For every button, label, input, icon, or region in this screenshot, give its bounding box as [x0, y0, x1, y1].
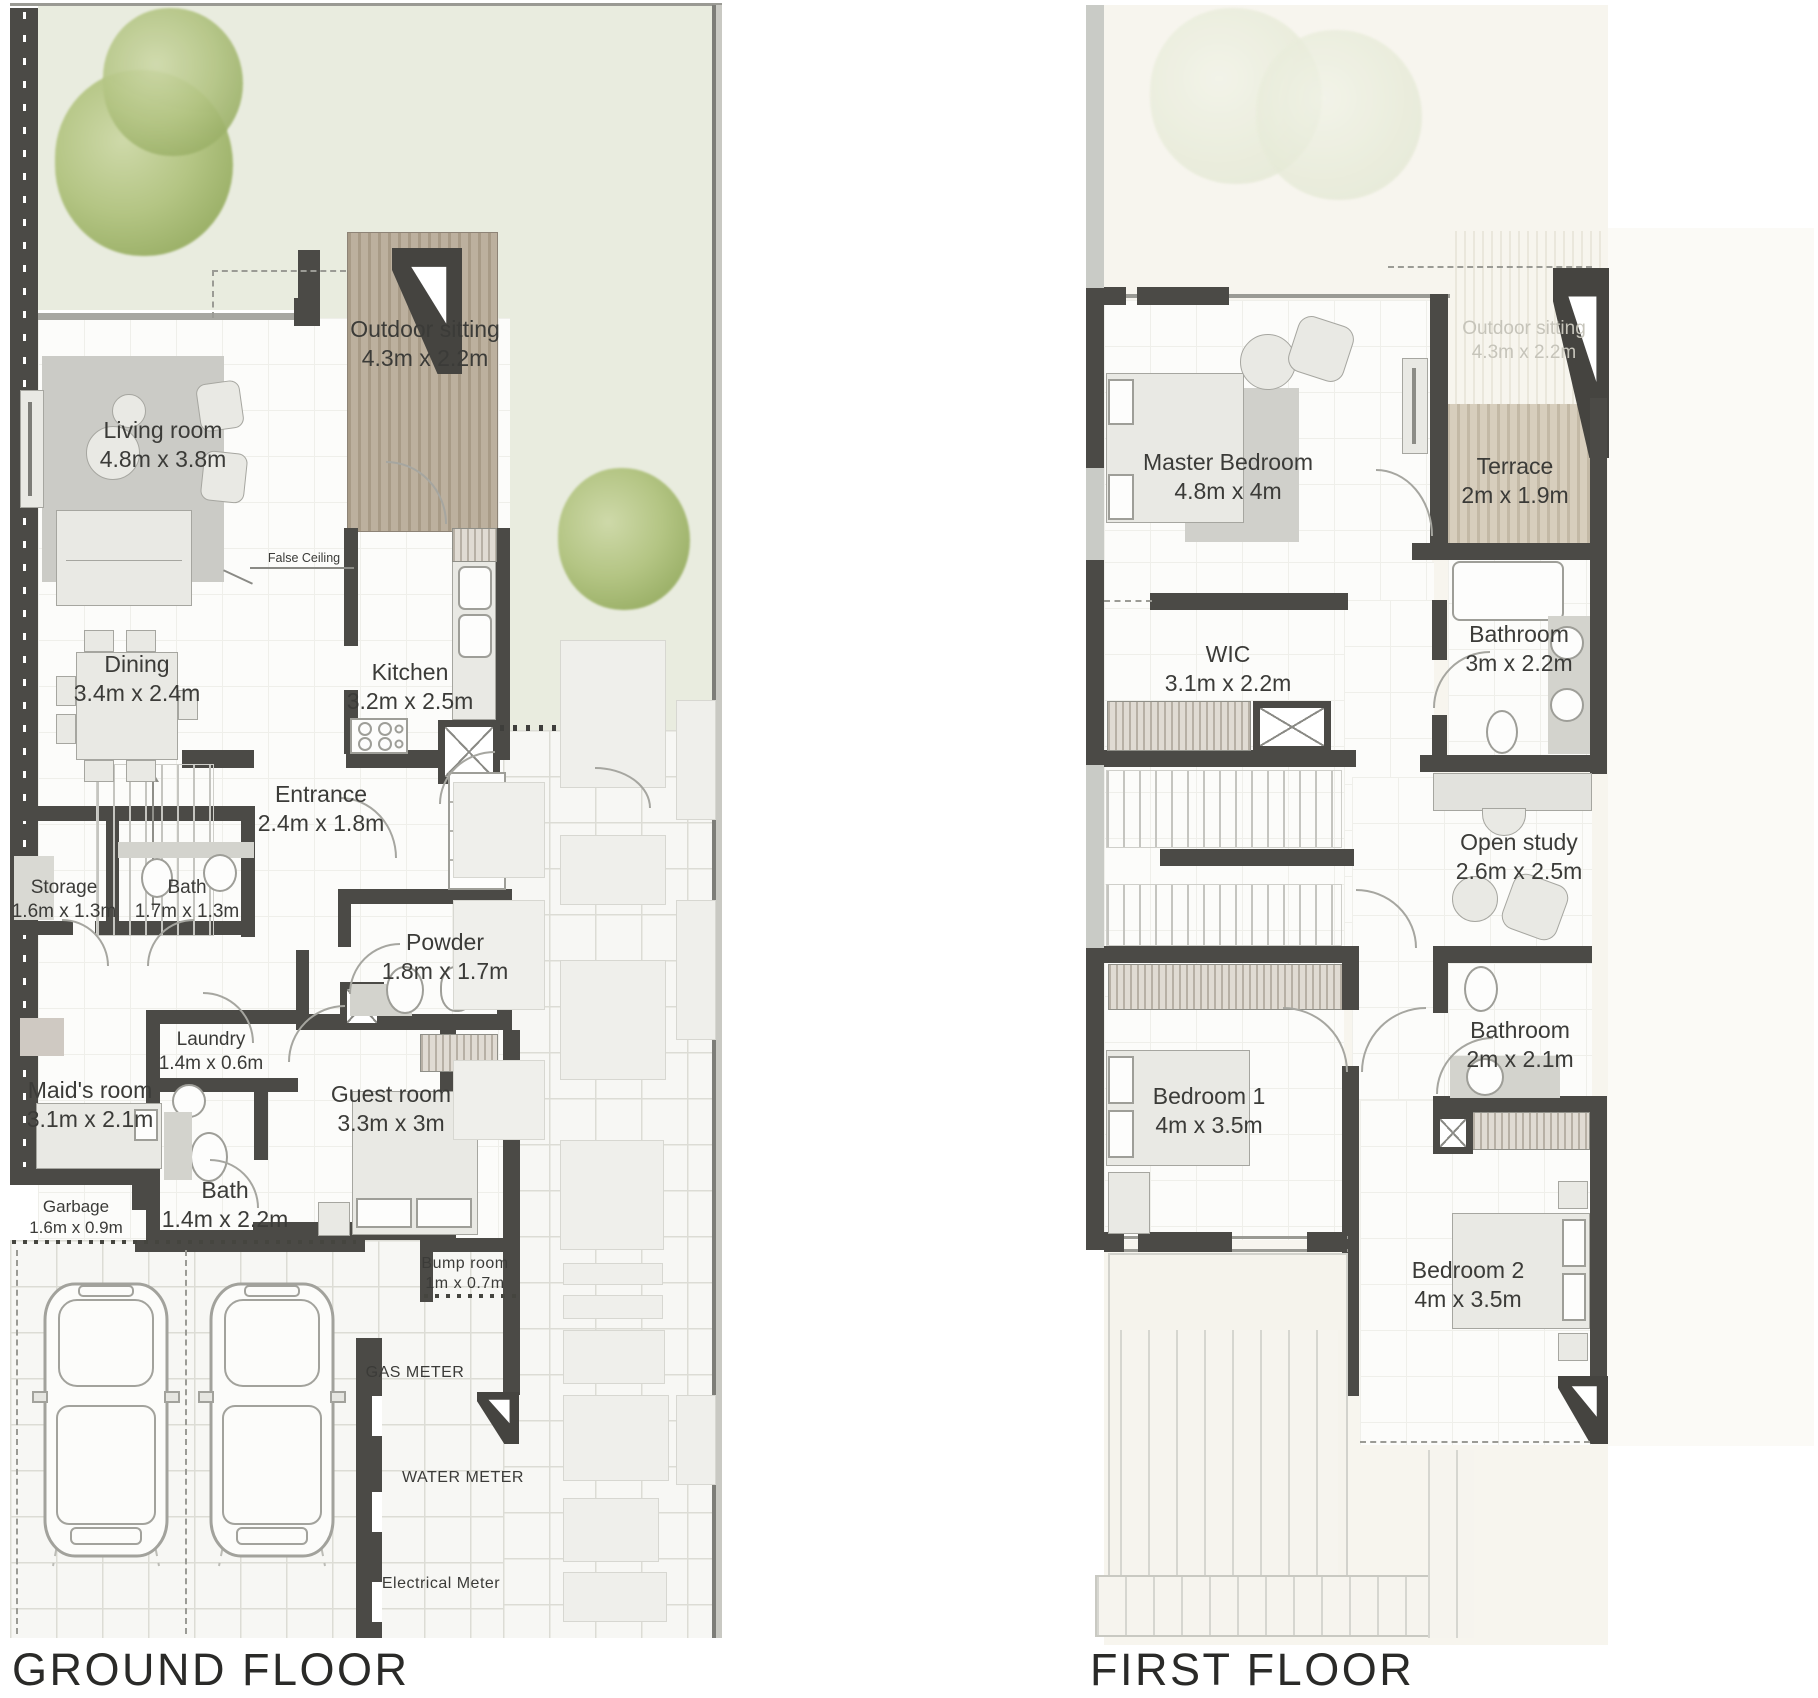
wardrobe	[1472, 1112, 1590, 1150]
pillow	[1562, 1273, 1586, 1321]
staircase-upper-flight	[1106, 770, 1342, 848]
service-shaft	[1433, 1112, 1473, 1154]
room-label-bathroom2: Bathroom2m x 2.1m	[1430, 1016, 1610, 1074]
wall	[1137, 287, 1229, 305]
balcony-slats-bottom	[1095, 1575, 1473, 1637]
setback-line	[1360, 1441, 1590, 1443]
ground-floor-title: GROUND FLOOR	[12, 1644, 410, 1696]
wall	[1433, 963, 1448, 1013]
nightstand	[1558, 1333, 1588, 1361]
opening-line	[1104, 600, 1152, 602]
study-desk	[1433, 773, 1592, 811]
room-label-bed1: Bedroom 14m x 3.5m	[1119, 1082, 1299, 1140]
wall	[1433, 946, 1592, 963]
roof-slats	[1428, 1450, 1474, 1638]
room-label-ghost-outdoor: Outdoor sitting4.3m x 2.2m	[1429, 317, 1619, 365]
wall	[1086, 948, 1104, 1250]
first-floor-title: FIRST FLOOR	[1090, 1644, 1414, 1696]
pillow	[1562, 1219, 1586, 1267]
floor-plan-sheet: { "document": {"type": "residential town…	[0, 0, 1818, 1698]
room-label-master: Master Bedroom4.8m x 4m	[1108, 448, 1348, 506]
corner-marker-icon	[1558, 1376, 1608, 1444]
room-label-study: Open study2.6m x 2.5m	[1424, 828, 1614, 886]
staircase-lower-flight	[1106, 884, 1342, 946]
wall	[1104, 946, 1356, 963]
wall	[1420, 755, 1594, 772]
room-label-bed2: Bedroom 24m x 3.5m	[1378, 1256, 1558, 1314]
wardrobe	[1108, 964, 1346, 1010]
room-label-bathroom1: Bathroom3m x 2.2m	[1429, 620, 1609, 678]
basin-icon	[1550, 688, 1584, 722]
wall	[1104, 287, 1126, 305]
pillow	[1108, 379, 1134, 425]
wall	[1160, 849, 1354, 866]
wall	[1342, 946, 1359, 1010]
tree-icon	[1256, 30, 1422, 200]
door-arc	[1376, 470, 1432, 536]
wall	[1307, 1232, 1347, 1252]
wall	[1104, 1232, 1124, 1252]
nightstand	[1558, 1181, 1588, 1209]
neighbor-ghost-area	[1608, 228, 1814, 1446]
first-floor-plan: Master Bedroom4.8m x 4m Outdoor sitting4…	[0, 0, 1818, 1698]
wall	[1412, 543, 1592, 560]
nightstand	[1108, 1172, 1150, 1234]
wall	[1086, 288, 1104, 468]
wall	[1590, 1096, 1607, 1396]
room-label-wic: WIC3.1m x 2.2m	[1138, 640, 1318, 698]
wall	[1086, 560, 1104, 765]
room-label-terrace: Terrace2m x 1.9m	[1435, 452, 1595, 510]
toilet-icon	[1464, 966, 1498, 1012]
wall	[1433, 1096, 1592, 1112]
wall	[1150, 593, 1348, 610]
service-shaft	[1253, 701, 1331, 753]
wall	[1432, 715, 1447, 757]
door-arc	[1283, 1008, 1347, 1072]
door-arc	[1356, 890, 1416, 948]
wall	[1138, 1232, 1232, 1252]
toilet-icon	[1486, 710, 1518, 754]
door-arc	[1362, 1008, 1426, 1072]
wardrobe-line	[1412, 368, 1416, 444]
wardrobe	[1107, 701, 1251, 751]
bathtub	[1452, 561, 1564, 621]
